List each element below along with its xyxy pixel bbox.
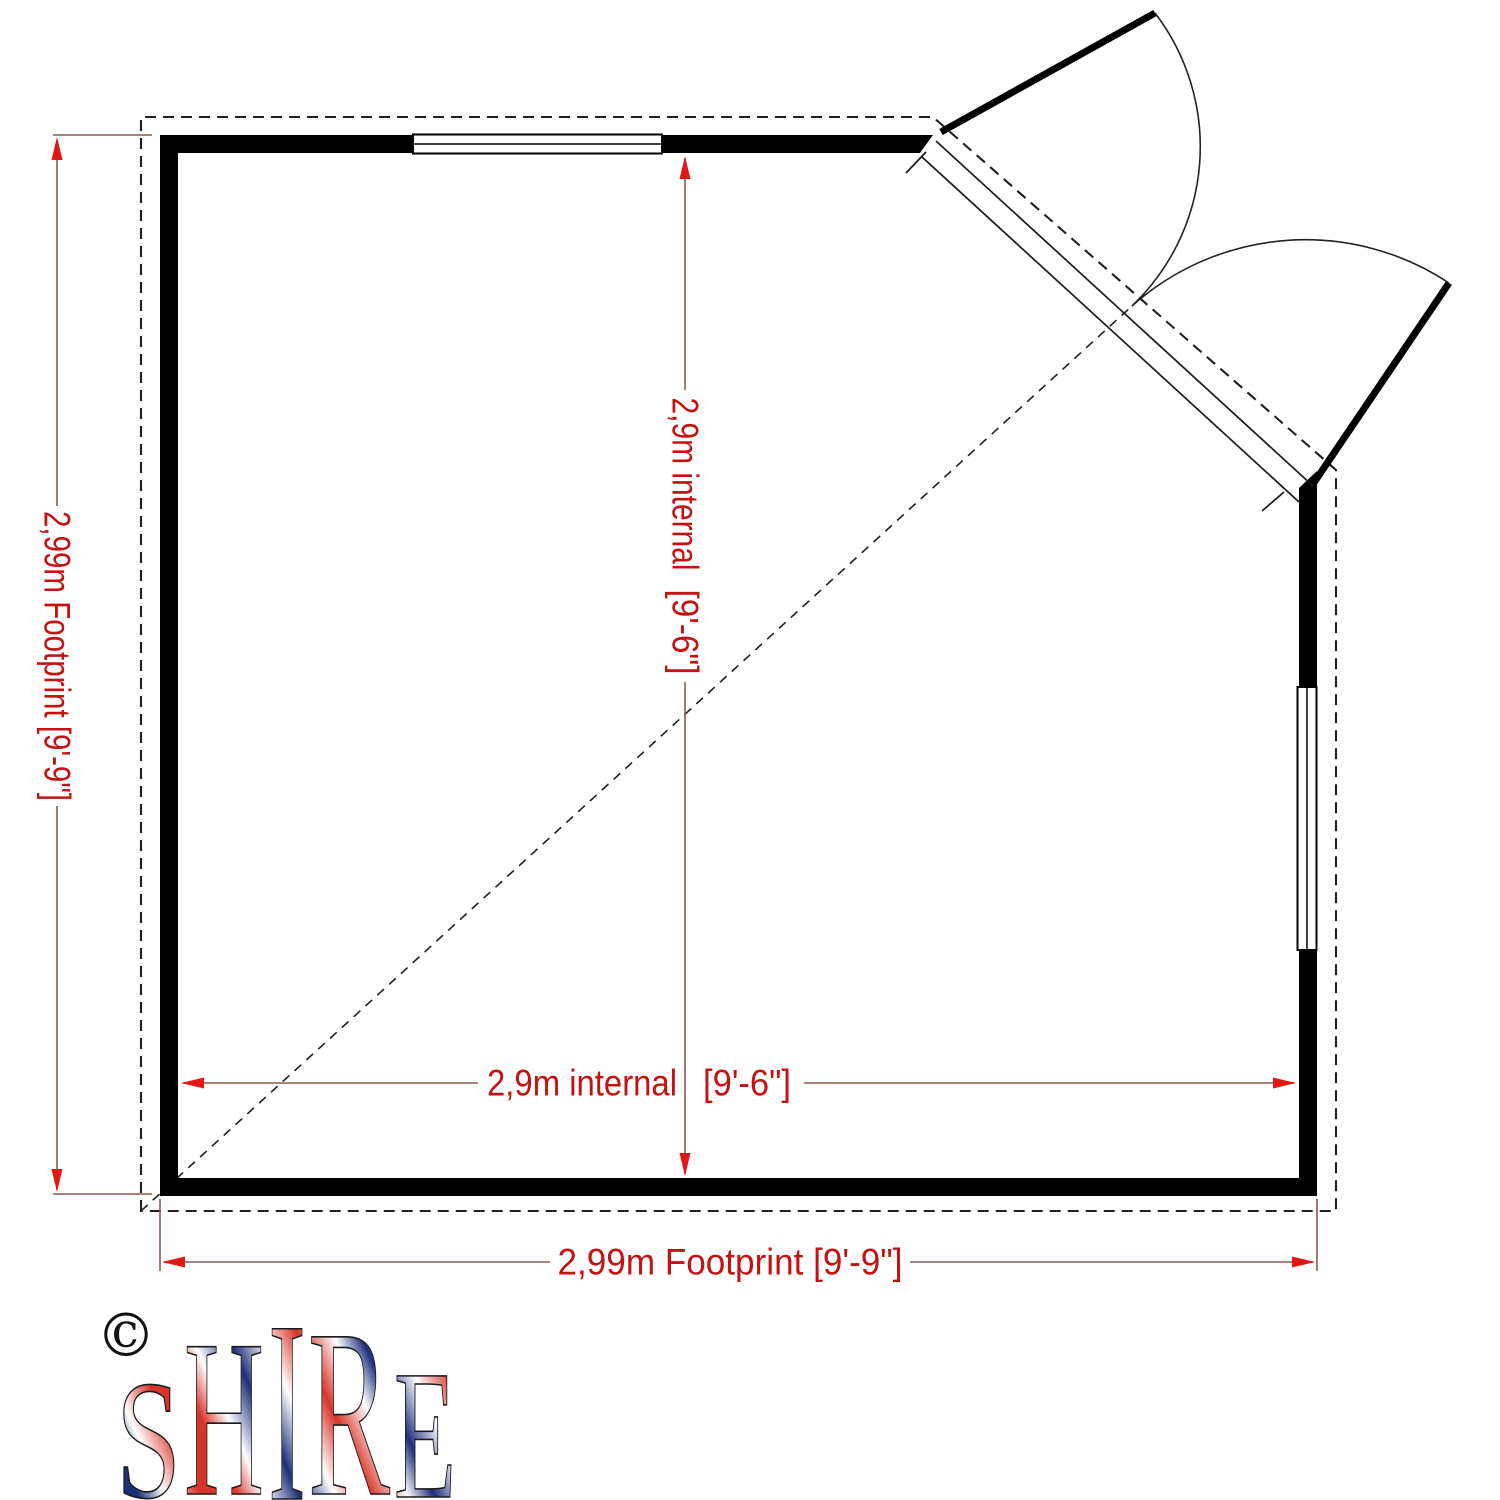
logo-letter-h: H bbox=[184, 1293, 264, 1500]
window-top bbox=[413, 135, 662, 154]
door-swing-arc-upper bbox=[1132, 13, 1200, 306]
dim-v-internal-label-imperial: [9'-6"] bbox=[665, 590, 706, 675]
dim-v-internal-arrow-up bbox=[680, 156, 691, 179]
logo-letter-s: S bbox=[116, 1346, 181, 1500]
dim-left-arrow-down bbox=[52, 1169, 63, 1192]
dim-bottom-arrow-right bbox=[1292, 1257, 1315, 1268]
dimension-internal-horizontal-labels: 2,9m internal [9'-6"] bbox=[487, 1063, 791, 1104]
brand-logo: © S H I R E bbox=[96, 1268, 456, 1500]
dim-bottom-label: 2,99m Footprint [9'-9"] bbox=[558, 1242, 903, 1283]
wall-bottom bbox=[160, 1178, 1317, 1196]
dim-left-label: 2,99m Footprint [9'-9"] bbox=[37, 511, 78, 801]
dim-h-internal-label-metric: 2,9m internal bbox=[487, 1063, 677, 1104]
dim-h-internal-label-imperial: [9'-6"] bbox=[703, 1063, 791, 1104]
wall-left bbox=[160, 135, 178, 1196]
hinge-tick-upper bbox=[906, 152, 926, 173]
dim-left-arrow-up bbox=[52, 137, 63, 160]
threshold-line-inner bbox=[922, 157, 1299, 502]
door-leaf-lower bbox=[1313, 283, 1449, 484]
hinge-tick-lower bbox=[1262, 492, 1284, 511]
dim-v-internal-label-metric: 2,9m internal bbox=[665, 398, 706, 571]
dim-h-internal-arrow-left bbox=[181, 1078, 204, 1089]
corner-double-doors bbox=[941, 13, 1449, 484]
logo-letter-i: I bbox=[268, 1268, 306, 1500]
window-right bbox=[1298, 687, 1317, 950]
logo-letter-r: R bbox=[308, 1280, 390, 1500]
dim-bottom-arrow-left bbox=[162, 1257, 185, 1268]
door-opening-threshold bbox=[906, 141, 1313, 511]
dim-v-internal-arrow-down bbox=[680, 1153, 691, 1176]
logo-letter-e: E bbox=[394, 1333, 456, 1500]
drawing-sheet: 2,99m Footprint [9'-9"] 2,99m Footprint … bbox=[0, 0, 1500, 1500]
dim-h-internal-arrow-right bbox=[1273, 1078, 1296, 1089]
door-swing-arc-lower bbox=[1132, 240, 1449, 306]
door-leaf-upper bbox=[941, 13, 1155, 132]
dimension-left-footprint: 2,99m Footprint [9'-9"] bbox=[37, 135, 153, 1194]
floor-plan-drawing: 2,99m Footprint [9'-9"] 2,99m Footprint … bbox=[0, 0, 1500, 1500]
dimension-internal-vertical: 2,9m internal [9'-6"] bbox=[665, 156, 706, 1176]
